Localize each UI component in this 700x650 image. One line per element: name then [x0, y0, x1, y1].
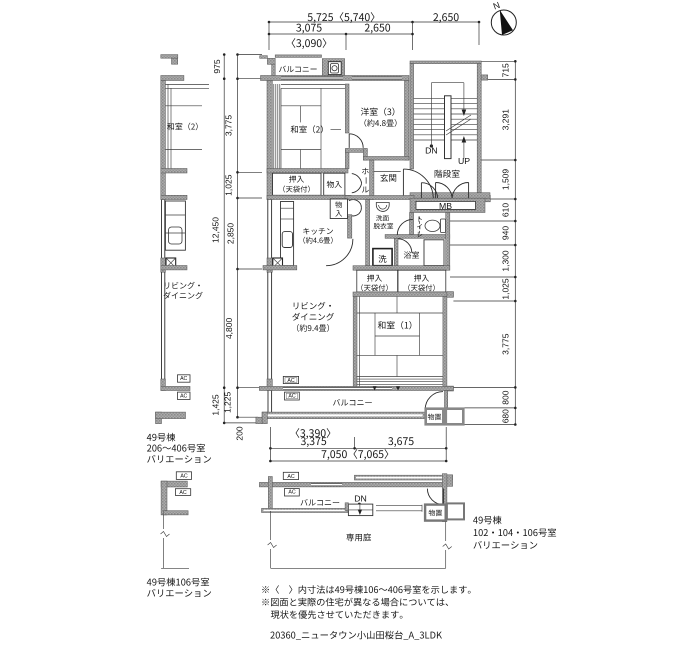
- svg-text:DN: DN: [425, 146, 438, 156]
- svg-text:UP: UP: [458, 156, 470, 166]
- svg-text:1,509: 1,509: [501, 169, 511, 191]
- svg-text:4,800: 4,800: [224, 317, 234, 339]
- svg-text:200: 200: [235, 426, 245, 440]
- svg-text:2,850: 2,850: [226, 223, 236, 245]
- svg-text:AC: AC: [180, 376, 187, 382]
- svg-text:1,025: 1,025: [224, 174, 234, 196]
- svg-text:1,225: 1,225: [223, 391, 233, 413]
- svg-text:3,775: 3,775: [501, 333, 511, 355]
- svg-text:1,300: 1,300: [501, 250, 511, 272]
- svg-text:940: 940: [501, 226, 511, 240]
- svg-text:AC: AC: [180, 474, 188, 480]
- svg-text:1,025: 1,025: [501, 278, 511, 300]
- svg-text:AC: AC: [180, 394, 187, 400]
- svg-text:AC: AC: [287, 378, 295, 384]
- svg-text:AC: AC: [179, 490, 187, 496]
- svg-text:680: 680: [501, 409, 511, 423]
- svg-text:800: 800: [501, 390, 511, 404]
- svg-text:3,291: 3,291: [501, 109, 511, 131]
- svg-text:1,425: 1,425: [211, 394, 221, 416]
- svg-text:610: 610: [501, 203, 511, 217]
- svg-text:AC: AC: [287, 474, 295, 480]
- svg-text:975: 975: [212, 59, 222, 73]
- svg-text:MB: MB: [439, 201, 452, 211]
- svg-text:AC: AC: [288, 394, 296, 400]
- svg-text:715: 715: [501, 63, 511, 77]
- svg-text:DN: DN: [354, 494, 367, 504]
- svg-text:12,450: 12,450: [211, 217, 221, 243]
- svg-text:3,775: 3,775: [224, 115, 234, 137]
- svg-text:AC: AC: [288, 490, 296, 496]
